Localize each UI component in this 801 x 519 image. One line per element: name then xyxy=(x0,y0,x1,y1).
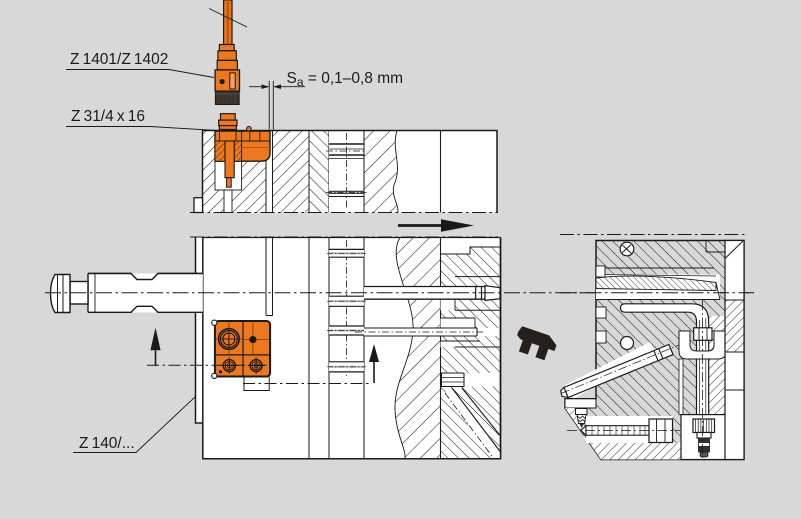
svg-text:Sa = 0,1–0,8 mm: Sa = 0,1–0,8 mm xyxy=(287,70,404,89)
svg-text:Z 140/...: Z 140/... xyxy=(79,435,135,452)
svg-text:Z 1401/Z 1402: Z 1401/Z 1402 xyxy=(70,51,168,68)
svg-text:Z 31/4 x 16: Z 31/4 x 16 xyxy=(71,108,145,125)
